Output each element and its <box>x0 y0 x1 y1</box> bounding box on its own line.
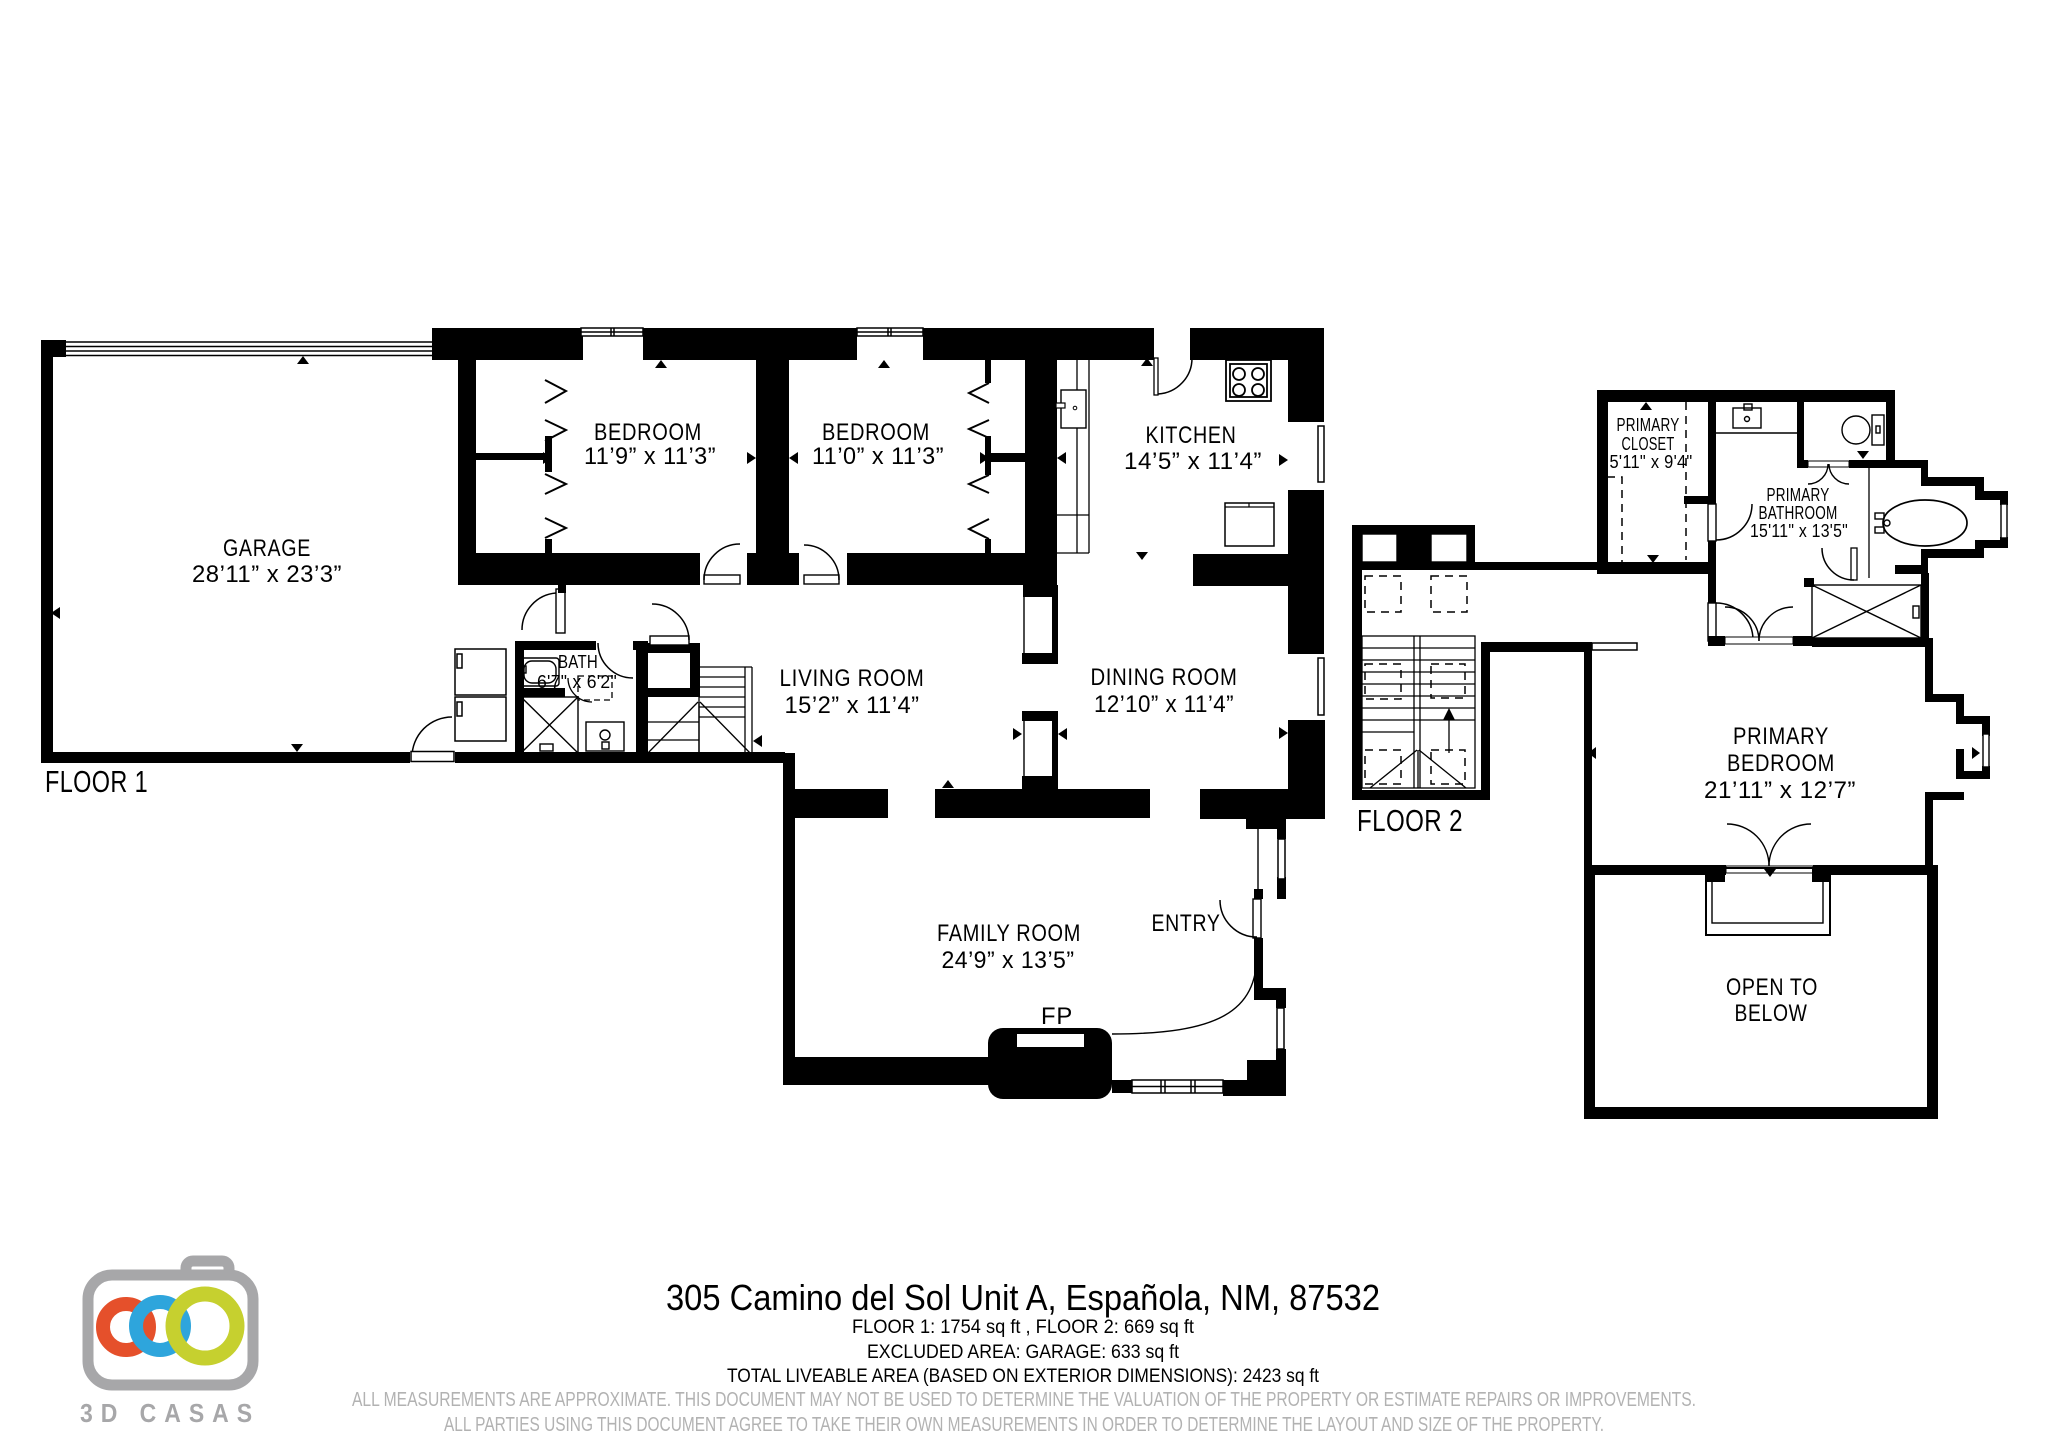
svg-text:21’11” x 12’7”: 21’11” x 12’7” <box>1704 777 1856 804</box>
svg-text:5'11" x 9'4": 5'11" x 9'4" <box>1610 452 1693 472</box>
svg-text:FLOOR 1: 1754 sq ft , FLOOR 2:: FLOOR 1: 1754 sq ft , FLOOR 2: 669 sq ft <box>852 1317 1195 1338</box>
svg-text:FLOOR 2: FLOOR 2 <box>1357 803 1463 838</box>
svg-text:FLOOR 1: FLOOR 1 <box>45 764 148 799</box>
svg-text:BATHROOM: BATHROOM <box>1759 503 1838 523</box>
svg-text:DINING ROOM: DINING ROOM <box>1091 664 1238 691</box>
svg-text:BEDROOM: BEDROOM <box>822 419 930 446</box>
svg-text:FP: FP <box>1041 1003 1073 1030</box>
svg-text:OPEN TO: OPEN TO <box>1726 974 1818 1001</box>
svg-text:12’10” x 11’4”: 12’10” x 11’4” <box>1094 691 1234 718</box>
svg-text:15’2” x 11’4”: 15’2” x 11’4” <box>785 692 920 719</box>
svg-text:14’5” x 11’4”: 14’5” x 11’4” <box>1124 448 1262 475</box>
svg-text:6'7" x 6'2": 6'7" x 6'2" <box>537 672 617 692</box>
svg-text:FAMILY ROOM: FAMILY ROOM <box>937 920 1081 947</box>
svg-text:TOTAL LIVEABLE AREA (BASED ON: TOTAL LIVEABLE AREA (BASED ON EXTERIOR D… <box>727 1366 1320 1387</box>
svg-text:PRIMARY: PRIMARY <box>1733 723 1829 750</box>
svg-text:ALL PARTIES USING THIS DOCUMEN: ALL PARTIES USING THIS DOCUMENT AGREE TO… <box>444 1414 1604 1436</box>
svg-text:GARAGE: GARAGE <box>223 535 311 562</box>
svg-text:11’9” x 11’3”: 11’9” x 11’3” <box>584 443 716 470</box>
svg-text:LIVING ROOM: LIVING ROOM <box>780 665 925 692</box>
svg-text:PRIMARY: PRIMARY <box>1767 485 1830 505</box>
svg-text:BATH: BATH <box>558 652 598 672</box>
svg-text:305 Camino del Sol Unit A, Esp: 305 Camino del Sol Unit A, Española, NM,… <box>666 1277 1380 1318</box>
svg-text:KITCHEN: KITCHEN <box>1146 422 1237 449</box>
svg-text:EXCLUDED AREA: GARAGE: 633 sq: EXCLUDED AREA: GARAGE: 633 sq ft <box>867 1342 1180 1363</box>
svg-text:BEDROOM: BEDROOM <box>1727 750 1835 777</box>
svg-text:24’9” x 13’5”: 24’9” x 13’5” <box>942 947 1075 974</box>
svg-text:PRIMARY: PRIMARY <box>1617 415 1680 435</box>
svg-text:ENTRY: ENTRY <box>1152 910 1221 937</box>
svg-text:BELOW: BELOW <box>1735 1000 1808 1027</box>
svg-text:15'11" x 13'5": 15'11" x 13'5" <box>1750 521 1848 541</box>
svg-text:ALL MEASUREMENTS ARE APPROXIMA: ALL MEASUREMENTS ARE APPROXIMATE. THIS D… <box>352 1389 1696 1411</box>
svg-text:11’0” x 11’3”: 11’0” x 11’3” <box>812 443 944 470</box>
svg-text:CLOSET: CLOSET <box>1622 434 1675 454</box>
svg-text:28’11” x 23’3”: 28’11” x 23’3” <box>192 561 342 588</box>
svg-text:BEDROOM: BEDROOM <box>594 419 702 446</box>
svg-text:3D CASAS: 3D CASAS <box>80 1398 260 1428</box>
